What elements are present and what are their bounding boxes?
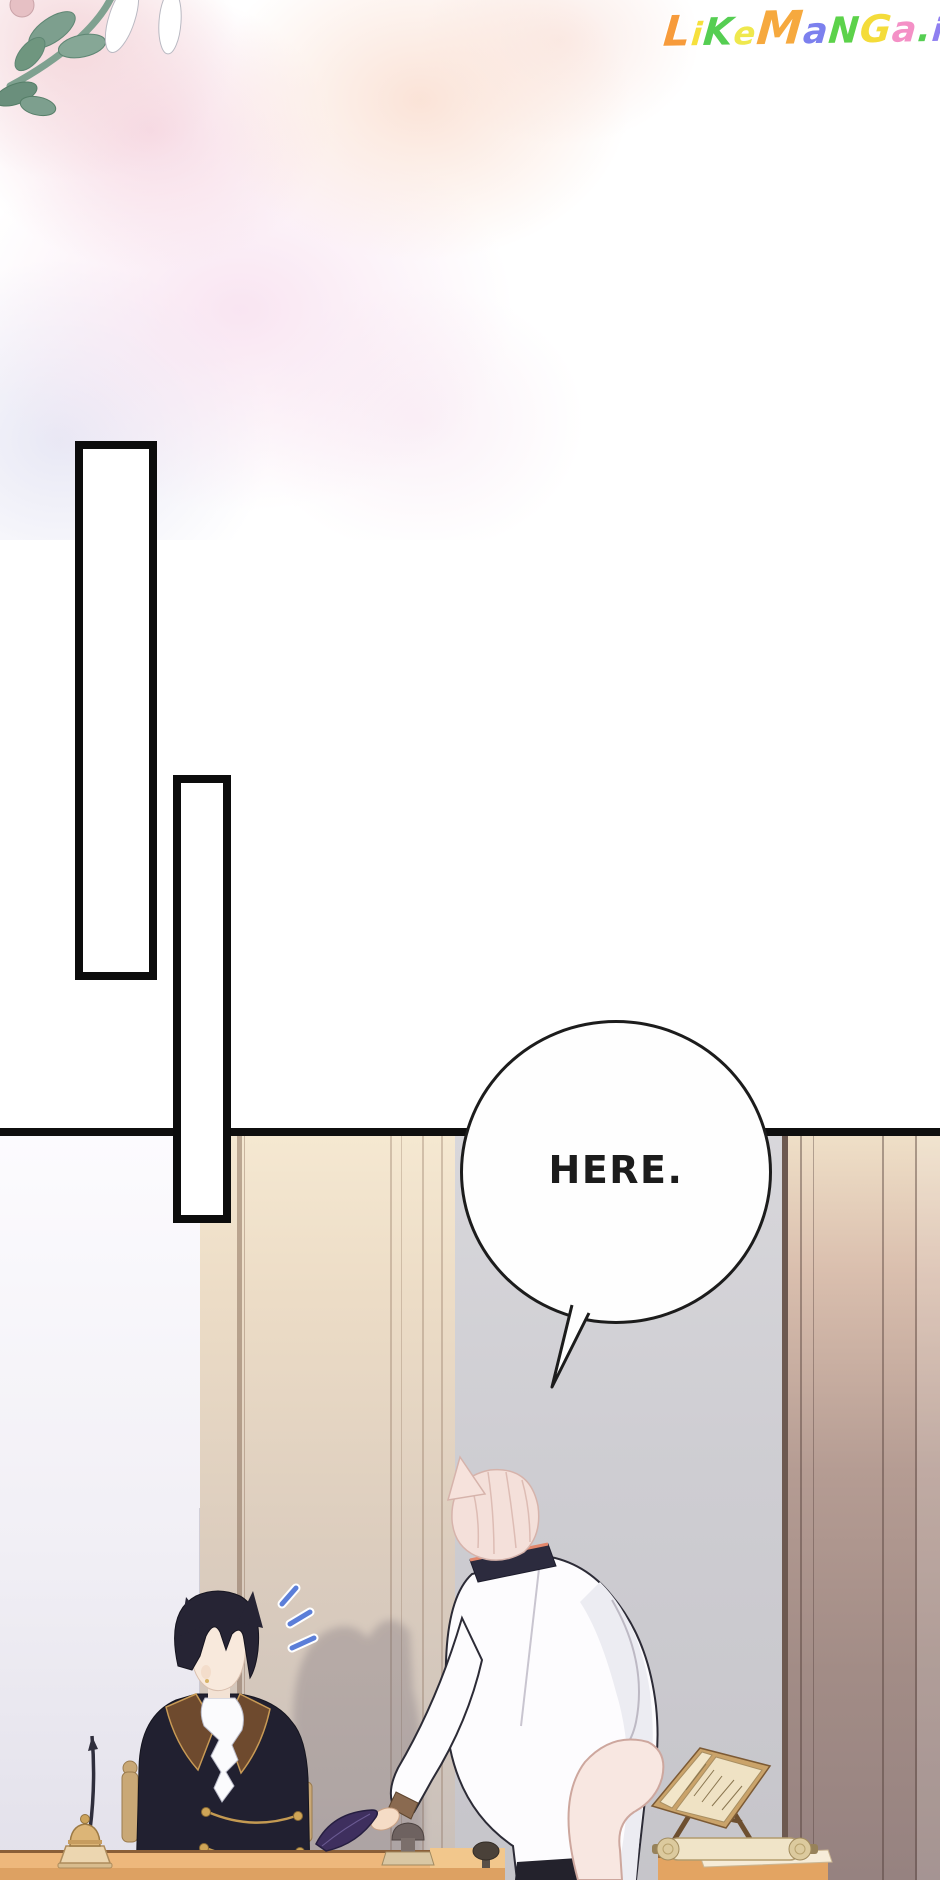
speech-bubble-tail	[0, 0, 940, 1880]
manga-page: LiKeMaNGa.io	[0, 0, 940, 1880]
speech-bubble-text: HERE.	[460, 1148, 772, 1192]
